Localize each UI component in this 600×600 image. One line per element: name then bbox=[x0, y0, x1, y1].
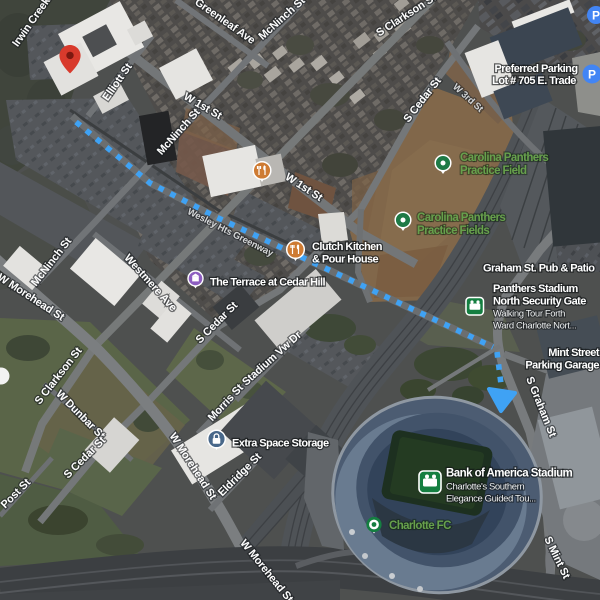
svg-text:Preferred Parking: Preferred Parking bbox=[495, 63, 578, 75]
svg-text:P: P bbox=[592, 9, 600, 23]
svg-text:& Pour House: & Pour House bbox=[312, 254, 379, 266]
svg-text:Panthers Stadium: Panthers Stadium bbox=[493, 283, 578, 295]
svg-text:Walking Tour Forth: Walking Tour Forth bbox=[493, 309, 565, 320]
svg-text:Mint Street: Mint Street bbox=[548, 347, 600, 359]
svg-text:The Terrace at Cedar Hill: The Terrace at Cedar Hill bbox=[210, 277, 326, 289]
svg-text:Lot # 705 E. Trade: Lot # 705 E. Trade bbox=[492, 75, 576, 87]
svg-text:Graham St. Pub & Patio: Graham St. Pub & Patio bbox=[483, 263, 595, 275]
svg-text:Carolina Panthers: Carolina Panthers bbox=[417, 212, 505, 224]
svg-text:North Security Gate: North Security Gate bbox=[493, 296, 586, 308]
svg-text:Elegance Guided Tou...: Elegance Guided Tou... bbox=[446, 494, 536, 505]
svg-text:Parking Garage: Parking Garage bbox=[525, 360, 599, 372]
svg-text:Clutch Kitchen: Clutch Kitchen bbox=[312, 241, 383, 253]
svg-text:Practice Field: Practice Field bbox=[460, 165, 527, 177]
svg-text:Extra Space Storage: Extra Space Storage bbox=[232, 438, 329, 450]
svg-text:Bank of America Stadium: Bank of America Stadium bbox=[446, 468, 573, 480]
svg-text:Carolina Panthers: Carolina Panthers bbox=[460, 152, 548, 164]
svg-text:P: P bbox=[588, 68, 596, 82]
svg-text:Practice Fields: Practice Fields bbox=[417, 225, 489, 237]
svg-text:Ward Charlotte Nort...: Ward Charlotte Nort... bbox=[493, 321, 576, 332]
svg-text:Charlotte FC: Charlotte FC bbox=[389, 520, 451, 532]
svg-text:Charlotte's Southern: Charlotte's Southern bbox=[446, 482, 524, 493]
